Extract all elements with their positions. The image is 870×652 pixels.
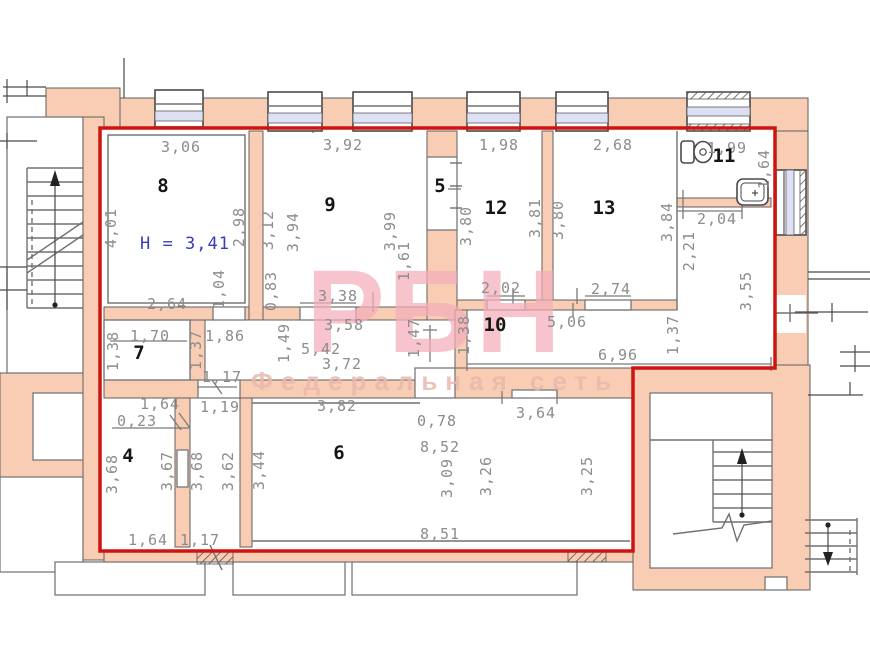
- dim-rs-h1: 2,21: [680, 231, 698, 271]
- dim-r9-left1: 3,12: [259, 210, 277, 250]
- room-12-number: 12: [485, 197, 508, 219]
- dim-r6-h1: 3,09: [438, 458, 456, 498]
- dim-r12-left: 3,80: [457, 206, 475, 246]
- window-3: [353, 92, 412, 131]
- dim-r7-left: 1,38: [104, 331, 122, 371]
- dim-r8-right: 2,98: [230, 207, 248, 247]
- dim-r13-left: 3,80: [549, 200, 567, 240]
- room-10-number: 10: [484, 314, 507, 336]
- ceiling-height-note: H = 3,41: [140, 234, 230, 254]
- dim-r4-right: 3,67: [158, 451, 176, 491]
- dim-r11-right: 1,64: [755, 149, 773, 189]
- lower-room-1: [55, 562, 205, 595]
- far-right-stairs: [805, 518, 857, 575]
- dim-corridor-right: 3,62: [219, 451, 237, 491]
- dim-r6-small: 0,78: [417, 412, 457, 430]
- right-wall-opening: [776, 295, 818, 333]
- dim-r10-bottom: 6,96: [598, 346, 638, 364]
- window-6-hatched: [687, 92, 750, 131]
- window-right-wall: [776, 170, 806, 235]
- window-1: [155, 90, 203, 127]
- lower-room-3: [352, 562, 577, 595]
- room-7-number: 7: [133, 342, 144, 364]
- dim-r10-door1: 2,02: [481, 279, 521, 297]
- dim-r6-h2: 3,26: [477, 456, 495, 496]
- room-9-number: 9: [324, 194, 335, 216]
- dim-rs-h3: 1,37: [664, 315, 682, 355]
- dim-r4-top: 1,64: [140, 395, 180, 413]
- left-shaft: [33, 393, 83, 460]
- lower-left-room: [0, 477, 83, 572]
- dim-r9-right2: 1,61: [395, 241, 413, 281]
- dim-r6-h3: 3,25: [578, 456, 596, 496]
- dim-r10-width: 5,06: [547, 313, 587, 331]
- room-6-number: 6: [333, 442, 344, 464]
- left-stairwell: [7, 117, 83, 373]
- dim-r9-lower: 0,83: [262, 271, 280, 311]
- watermark-subtitle: Федеральная сеть: [251, 366, 619, 396]
- dim-corridor-bottom: 1,17: [180, 531, 220, 549]
- dim-r12-top: 1,98: [479, 136, 519, 154]
- dim-hall-door: 1,17: [202, 368, 242, 386]
- lower-right-notch: [765, 577, 787, 590]
- dim-r4-offset: 0,23: [117, 412, 157, 430]
- dim-r9-left2: 3,94: [284, 212, 302, 252]
- dim-r8-left: 4,01: [102, 208, 120, 248]
- dim-r7-door: 1,86: [205, 327, 245, 345]
- dim-r6-inner-width: 8,52: [420, 438, 460, 456]
- dim-r8-bottom: 2,64: [147, 295, 187, 313]
- dim-hall-w3: 3,72: [322, 355, 362, 373]
- window-2: [268, 92, 322, 131]
- room-8-number: 8: [157, 175, 168, 197]
- dim-r8-shaft: 1,04: [210, 269, 228, 309]
- dim-r4-bottom: 1,64: [128, 531, 168, 549]
- dim-r8-top: 3,06: [161, 138, 201, 156]
- dim-hall-w1: 3,58: [324, 316, 364, 334]
- dim-r6-bottom: 8,51: [420, 525, 460, 543]
- dim-r6-top: 3,82: [317, 397, 357, 415]
- dim-r13-top: 2,68: [593, 136, 633, 154]
- dim-r13-right: 3,84: [658, 202, 676, 242]
- dim-r6-opening: 3,64: [516, 404, 556, 422]
- dim-corridor-top: 1,19: [200, 398, 240, 416]
- lower-room-2: [233, 562, 345, 595]
- dim-r4-left: 3,68: [103, 454, 121, 494]
- dim-r9-top: 3,92: [323, 136, 363, 154]
- floor-plan-page: РБН Федеральная сеть 3,06 3,92 1,98 2,68…: [0, 0, 870, 652]
- dim-corridor-left: 3,68: [188, 451, 206, 491]
- dim-r6-left: 3,44: [250, 450, 268, 490]
- room-5-number: 5: [434, 175, 445, 197]
- room-4-number: 4: [122, 445, 133, 467]
- dim-r9-opening: 3,38: [318, 287, 358, 305]
- window-4: [467, 92, 520, 131]
- dim-r7-right: 1,37: [187, 330, 205, 370]
- dim-rs-h2: 3,55: [737, 271, 755, 311]
- dim-hall-left: 1,49: [275, 323, 293, 363]
- dim-r12-right: 3,81: [526, 198, 544, 238]
- room-11-number: 11: [713, 145, 736, 167]
- window-5: [556, 92, 608, 131]
- dim-r10-left: 1,38: [455, 315, 473, 355]
- dim-r11-bottom: 2,04: [697, 210, 737, 228]
- dim-r10-door2: 2,74: [591, 280, 631, 298]
- dim-hall-right: 1,47: [405, 318, 423, 358]
- floor-plan-svg: РБН Федеральная сеть 3,06 3,92 1,98 2,68…: [0, 0, 870, 652]
- room-13-number: 13: [593, 197, 616, 219]
